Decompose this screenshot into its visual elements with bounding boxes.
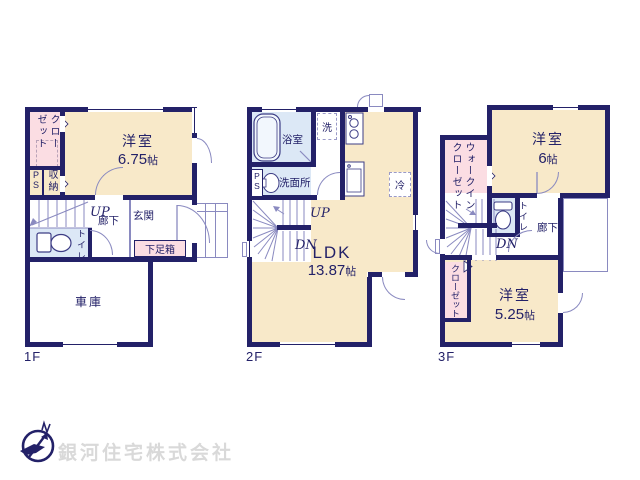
shoe-box-label: 下足箱	[134, 240, 186, 257]
room-size: 6.75帖	[93, 151, 183, 169]
room-size: 5.25帖	[470, 306, 560, 324]
door-arc	[90, 230, 113, 255]
room-size: 6帖	[503, 150, 593, 168]
size-value: 6.75	[118, 151, 147, 168]
door-arc	[357, 95, 369, 107]
balcony-door-arc	[563, 293, 583, 313]
floor-plan-canvas: 洗 冷	[0, 0, 640, 480]
storage-label: 収納	[44, 169, 58, 199]
closet-label: クローゼット	[449, 264, 461, 320]
size-unit: 帖	[345, 266, 356, 278]
window	[262, 107, 296, 112]
garage-label: 車庫	[59, 295, 119, 309]
toilet-label: トイレ	[517, 201, 529, 233]
floor-label-2f: 2F	[246, 349, 263, 364]
wall	[440, 255, 563, 260]
wall	[367, 277, 372, 347]
company-name: 銀河住宅株式会社	[58, 438, 234, 465]
room-name: 洋室	[470, 287, 560, 304]
door-arc	[382, 277, 405, 300]
washer-space: 洗	[317, 113, 337, 140]
ldk-name: LDK	[287, 243, 377, 263]
wall	[311, 112, 316, 167]
washroom-label: 洗面所	[279, 177, 311, 190]
wall	[458, 223, 497, 228]
floor-label-3f: 3F	[438, 349, 455, 364]
wall	[440, 135, 492, 140]
wall	[487, 105, 610, 110]
door-opening	[95, 195, 123, 200]
wall	[25, 107, 30, 347]
room-name: 洋室	[503, 131, 593, 148]
window	[192, 108, 197, 133]
entrance-divider-line	[129, 200, 131, 257]
pipe-space-label: PS	[253, 171, 263, 195]
stairs-up-label: UP	[310, 206, 330, 221]
size-unit: 帖	[147, 155, 158, 167]
closet-opening	[487, 166, 492, 186]
stairs-down-label: DN	[496, 237, 518, 252]
toilet-label: トイレ	[74, 229, 87, 263]
door-opening	[537, 193, 560, 198]
window	[247, 241, 252, 257]
door-arc	[197, 138, 212, 163]
window-arc	[426, 240, 440, 254]
size-value: 13.87	[308, 262, 346, 279]
wall	[340, 112, 345, 200]
hallway-label: 廊下	[537, 222, 558, 235]
window	[88, 107, 163, 112]
exterior-door-leaf	[369, 94, 383, 107]
wall	[252, 162, 316, 167]
hallway-label: 廊下	[98, 215, 119, 228]
wall	[277, 225, 311, 230]
door-opening	[317, 195, 340, 200]
shoe-box-text: 下足箱	[145, 241, 175, 256]
wall	[413, 107, 418, 277]
size-value: 6	[538, 150, 546, 167]
washer-label: 洗	[322, 119, 332, 134]
room-name: 洋室	[93, 133, 183, 150]
fridge-space: 冷	[389, 172, 411, 197]
size-unit: 帖	[547, 154, 558, 166]
stairs-1f-icon	[29, 199, 92, 228]
size-unit: 帖	[524, 310, 535, 322]
floor-label-1f: 1F	[24, 349, 41, 364]
walk-in-closet-label: ウォークインクローゼット	[447, 142, 475, 218]
closet-label: クローゼット	[34, 114, 60, 160]
fridge-label: 冷	[395, 177, 405, 192]
wall	[25, 257, 192, 262]
wall	[440, 342, 563, 347]
window-sill	[242, 242, 247, 257]
window	[553, 105, 578, 110]
bathroom-label: 浴室	[282, 134, 303, 147]
door-opening	[472, 255, 496, 260]
wall	[247, 107, 252, 347]
wall	[148, 262, 153, 347]
size-value: 5.25	[495, 306, 524, 323]
closet-opening	[60, 176, 65, 192]
closet-opening	[60, 116, 65, 132]
wall	[605, 105, 610, 198]
window	[512, 342, 540, 347]
ldk-size: 13.87帖	[287, 262, 377, 280]
door-opening	[368, 107, 384, 112]
window-opening	[440, 239, 445, 254]
door-arc	[317, 172, 340, 195]
window	[413, 215, 418, 230]
porch-step-line	[194, 211, 228, 212]
compass-north-icon	[14, 420, 62, 468]
garage-shutter	[63, 342, 117, 347]
pipe-space-label: PS	[31, 170, 42, 194]
entrance-label: 玄関	[133, 210, 154, 223]
balcony-3f	[563, 198, 608, 272]
window	[280, 342, 335, 347]
